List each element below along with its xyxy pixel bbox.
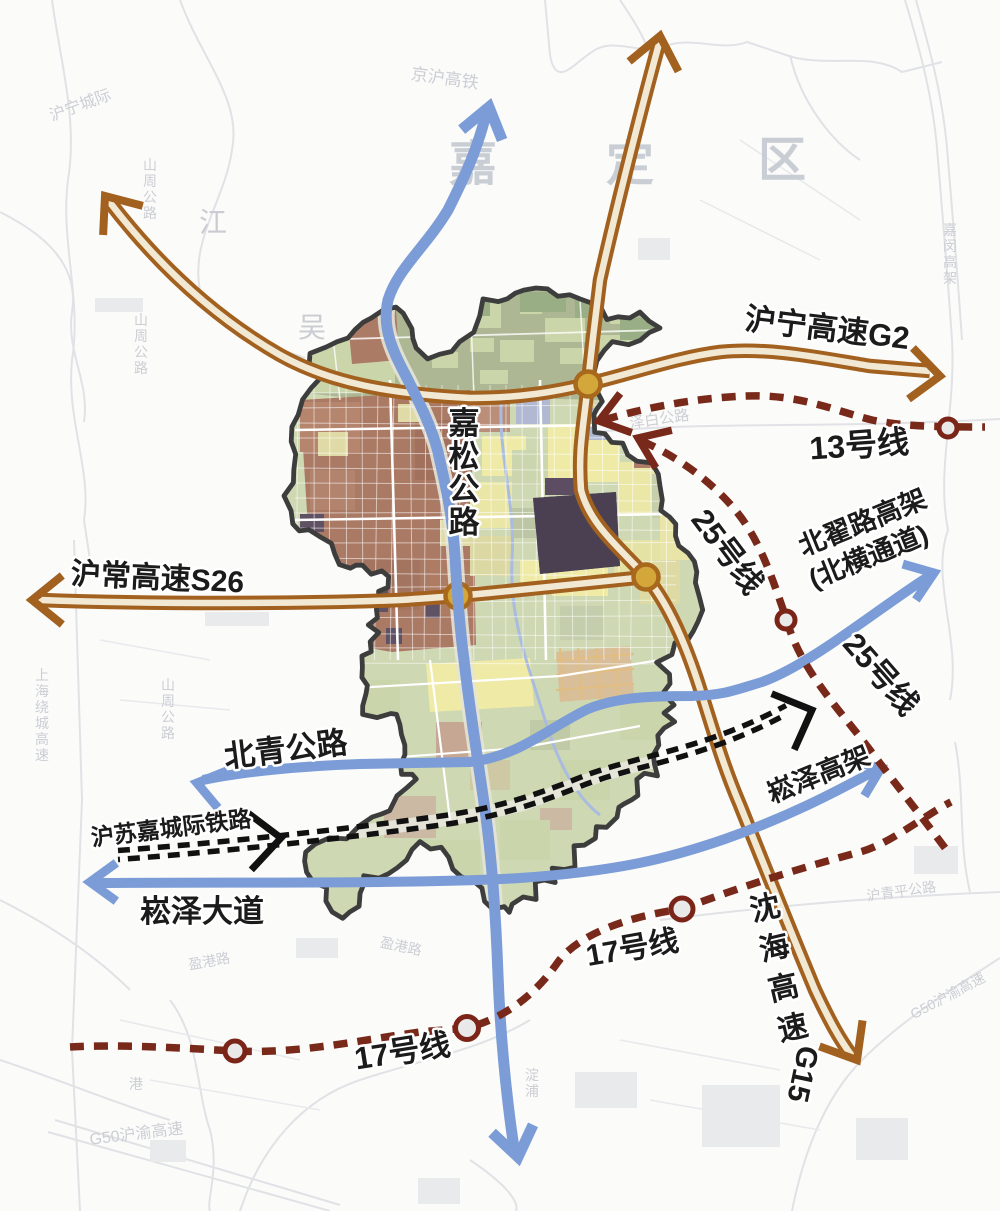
svg-text:嘉松公路: 嘉松公路 [449, 406, 481, 540]
svg-text:淀浦: 淀浦 [525, 1067, 539, 1099]
svg-text:上海绕城高速: 上海绕城高速 [35, 667, 49, 763]
svg-text:吴: 吴 [298, 312, 326, 343]
svg-text:港: 港 [129, 1076, 143, 1092]
svg-text:13号线: 13号线 [808, 424, 910, 467]
svg-text:崧泽大道: 崧泽大道 [140, 894, 264, 929]
svg-text:山周公路: 山周公路 [134, 312, 148, 376]
svg-text:嘉闵高架: 嘉闵高架 [943, 222, 957, 286]
svg-text:山周公路: 山周公路 [143, 157, 157, 221]
svg-text:区: 区 [758, 134, 806, 187]
svg-text:山周公路: 山周公路 [161, 677, 175, 741]
svg-text:江: 江 [199, 207, 227, 238]
